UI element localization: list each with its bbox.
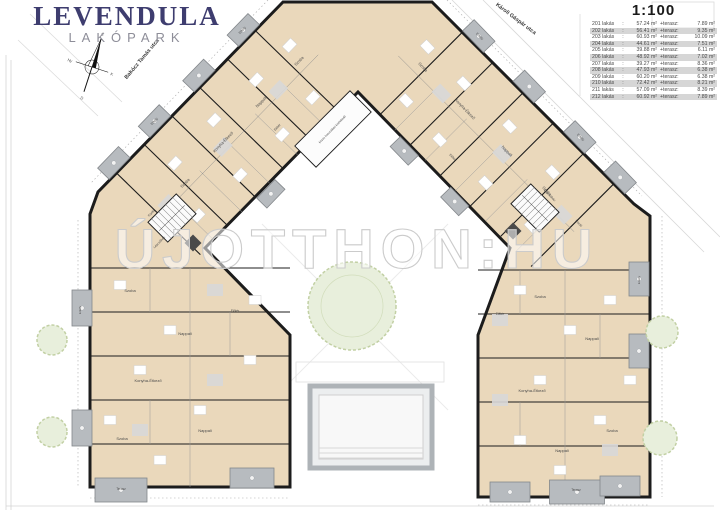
- room-label: Szoba: [606, 428, 618, 433]
- furniture: [594, 416, 606, 425]
- bathroom: [207, 374, 223, 386]
- balcony-furniture: [402, 149, 406, 153]
- unit-area: 39.88 m²: [625, 47, 660, 54]
- furniture: [554, 466, 566, 475]
- unit-area: 56.41 m²: [625, 28, 660, 35]
- unit-row: 211 lakás:57.09 m²+terasz:8.39 m²: [590, 87, 717, 94]
- unit-area: 57.24 m²: [625, 21, 660, 28]
- scale-label: 1:100: [590, 2, 717, 19]
- unit-area: 72.42 m²: [625, 80, 660, 87]
- terrace-label: +terasz:: [660, 74, 689, 81]
- balcony-furniture: [269, 192, 273, 196]
- unit-row: 204 lakás:44.61 m²+terasz:7.51 m²: [590, 41, 717, 48]
- unit-area: 44.61 m²: [625, 41, 660, 48]
- unit-number: 207 lakás: [590, 61, 621, 68]
- unit-area: 60.93 m²: [625, 34, 660, 41]
- unit-number: 201 lakás: [590, 21, 621, 28]
- terrace-area: 9.35 m²: [689, 28, 717, 35]
- furniture: [249, 296, 261, 305]
- unit-number: 203 lakás: [590, 34, 621, 41]
- compass-south-label: D: [80, 95, 84, 101]
- furniture: [244, 356, 256, 365]
- terrace-label: +terasz:: [660, 80, 689, 87]
- furniture: [564, 326, 576, 335]
- terrace-label: +terasz:: [660, 61, 689, 68]
- furniture: [624, 376, 636, 385]
- unit-area: 47.93 m²: [625, 67, 660, 74]
- furniture: [514, 286, 526, 295]
- room-label: Terasz: [571, 488, 581, 492]
- room-label: Szoba: [116, 436, 128, 441]
- unit-area: 60.20 m²: [625, 74, 660, 81]
- unit-row: 207 lakás:39.27 m²+terasz:8.36 m²: [590, 61, 717, 68]
- street-label-karoli: Károli Gáspár utca: [494, 2, 537, 37]
- unit-row: 209 lakás:60.20 m²+terasz:6.38 m²: [590, 74, 717, 81]
- room-label: Nappali: [555, 448, 569, 453]
- balcony-furniture: [197, 73, 201, 77]
- terrace-area: 6.38 m²: [689, 67, 717, 74]
- terrace-area: 10.09 m²: [689, 34, 717, 41]
- floor-plan-sheet: SzobaNappaliKonyha-ÉtkezőElőtérSzobaFürd…: [0, 0, 720, 510]
- bathroom: [132, 424, 148, 436]
- terrace-area: 8.39 m²: [689, 87, 717, 94]
- unit-area: 48.92 m²: [625, 54, 660, 61]
- room-label: Konyha-Étkező: [518, 388, 546, 393]
- terrace-label: +terasz:: [660, 67, 689, 74]
- units-table: 201 lakás:57.24 m²+terasz:7.89 m²202 lak…: [590, 21, 717, 100]
- terrace-area: 8.36 m²: [689, 61, 717, 68]
- balcony-furniture: [80, 426, 84, 430]
- room-label: Konyha-Étkező: [134, 378, 162, 383]
- logo: LEVENDULA LAKÓPARK: [18, 2, 236, 45]
- units-table-panel: 1:100 201 lakás:57.24 m²+terasz:7.89 m²2…: [590, 2, 717, 100]
- terrace-label: +terasz:: [660, 34, 689, 41]
- terrace-area: 7.51 m²: [689, 41, 717, 48]
- unit-number: 211 lakás: [590, 87, 621, 94]
- unit-row: 210 lakás:72.42 m²+terasz:8.21 m²: [590, 80, 717, 87]
- furniture: [534, 376, 546, 385]
- room-label: Előtér: [231, 309, 240, 313]
- compass-east-label: K: [110, 71, 114, 77]
- bathroom: [207, 284, 223, 296]
- unit-row: 212 lakás:60.92 m²+terasz:7.89 m²: [590, 94, 717, 101]
- tree: [646, 316, 678, 348]
- furniture: [514, 436, 526, 445]
- room-label: Szoba: [534, 294, 546, 299]
- terrace-area: 6.38 m²: [689, 74, 717, 81]
- tree: [643, 421, 677, 455]
- room-label: Nappali: [198, 428, 212, 433]
- room-label: Erkély: [637, 275, 641, 284]
- unit-number: 205 lakás: [590, 47, 621, 54]
- balcony-furniture: [112, 161, 116, 165]
- room-label: Nappali: [585, 336, 599, 341]
- unit-number: 210 lakás: [590, 80, 621, 87]
- unit-row: 208 lakás:47.93 m²+terasz:6.38 m²: [590, 67, 717, 74]
- furniture: [154, 456, 166, 465]
- tree: [37, 417, 67, 447]
- furniture: [164, 326, 176, 335]
- terrace-label: +terasz:: [660, 54, 689, 61]
- courtyard-ramp: [310, 386, 432, 468]
- unit-number: 209 lakás: [590, 74, 621, 81]
- terrace-area: 7.89 m²: [689, 94, 717, 101]
- logo-title: LEVENDULA: [18, 2, 236, 30]
- unit-number: 206 lakás: [590, 54, 621, 61]
- unit-number: 204 lakás: [590, 41, 621, 48]
- terrace-label: +terasz:: [660, 87, 689, 94]
- balcony-furniture: [637, 349, 641, 353]
- furniture: [104, 416, 116, 425]
- balcony-furniture: [618, 484, 622, 488]
- terrace-area: 7.89 m²: [689, 21, 717, 28]
- terrace-label: +terasz:: [660, 21, 689, 28]
- furniture: [134, 366, 146, 375]
- unit-number: 202 lakás: [590, 28, 621, 35]
- room-label: Nappali: [178, 331, 192, 336]
- logo-subtitle: LAKÓPARK: [18, 30, 236, 45]
- balcony-furniture: [453, 199, 457, 203]
- unit-row: 201 lakás:57.24 m²+terasz:7.89 m²: [590, 21, 717, 28]
- terrace-label: +terasz:: [660, 47, 689, 54]
- unit-row: 205 lakás:39.88 m²+terasz:6.11 m²: [590, 47, 717, 54]
- unit-area: 60.92 m²: [625, 94, 660, 101]
- watermark-text: ÚJOTTHON:HU: [115, 217, 600, 280]
- terrace-label: +terasz:: [660, 28, 689, 35]
- terrace-area: 8.21 m²: [689, 80, 717, 87]
- bathroom: [602, 444, 618, 456]
- balcony-furniture: [527, 84, 531, 88]
- terrace-area: 6.11 m²: [689, 47, 717, 54]
- unit-number: 212 lakás: [590, 94, 621, 101]
- unit-area: 39.27 m²: [625, 61, 660, 68]
- terrace-label: +terasz:: [660, 41, 689, 48]
- terrace-area: 7.02 m²: [689, 54, 717, 61]
- unit-number: 208 lakás: [590, 67, 621, 74]
- bathroom: [492, 394, 508, 406]
- room-label: Előtér: [496, 312, 505, 316]
- balcony-furniture: [250, 476, 254, 480]
- furniture: [194, 406, 206, 415]
- room-label: Szoba: [124, 288, 136, 293]
- unit-row: 206 lakás:48.92 m²+terasz:7.02 m²: [590, 54, 717, 61]
- compass-west-label: Ny: [67, 57, 73, 63]
- tree: [37, 325, 67, 355]
- balcony-furniture: [508, 490, 512, 494]
- room-label: Terasz: [116, 487, 126, 491]
- unit-area: 57.09 m²: [625, 87, 660, 94]
- unit-row: 203 lakás:60.93 m²+terasz:10.09 m²: [590, 34, 717, 41]
- unit-row: 202 lakás:56.41 m²+terasz:9.35 m²: [590, 28, 717, 35]
- furniture: [604, 296, 616, 305]
- room-label: Erkély: [78, 305, 82, 314]
- balcony-furniture: [618, 175, 622, 179]
- terrace-label: +terasz:: [660, 94, 689, 101]
